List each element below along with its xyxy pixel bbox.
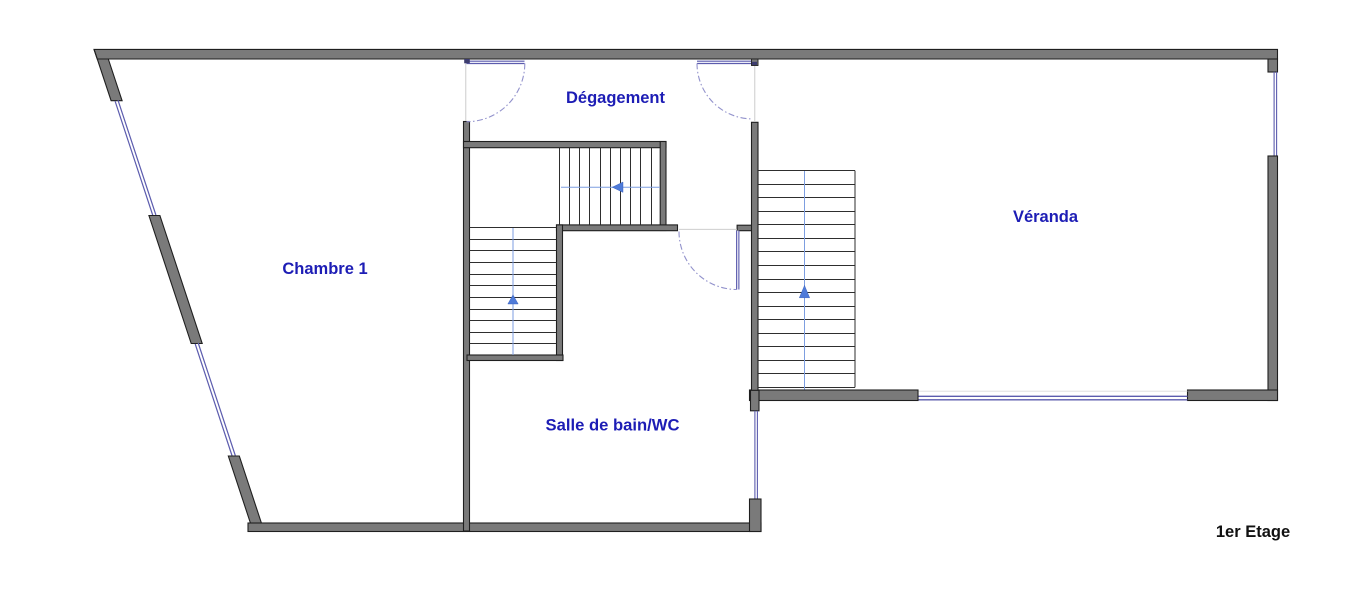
svg-text:Véranda: Véranda <box>1013 208 1079 226</box>
svg-text:Dégagement: Dégagement <box>566 89 666 107</box>
svg-text:Salle de bain/WC: Salle de bain/WC <box>546 417 680 435</box>
svg-text:Chambre 1: Chambre 1 <box>282 260 367 278</box>
svg-text:1er Etage: 1er Etage <box>1216 523 1290 541</box>
